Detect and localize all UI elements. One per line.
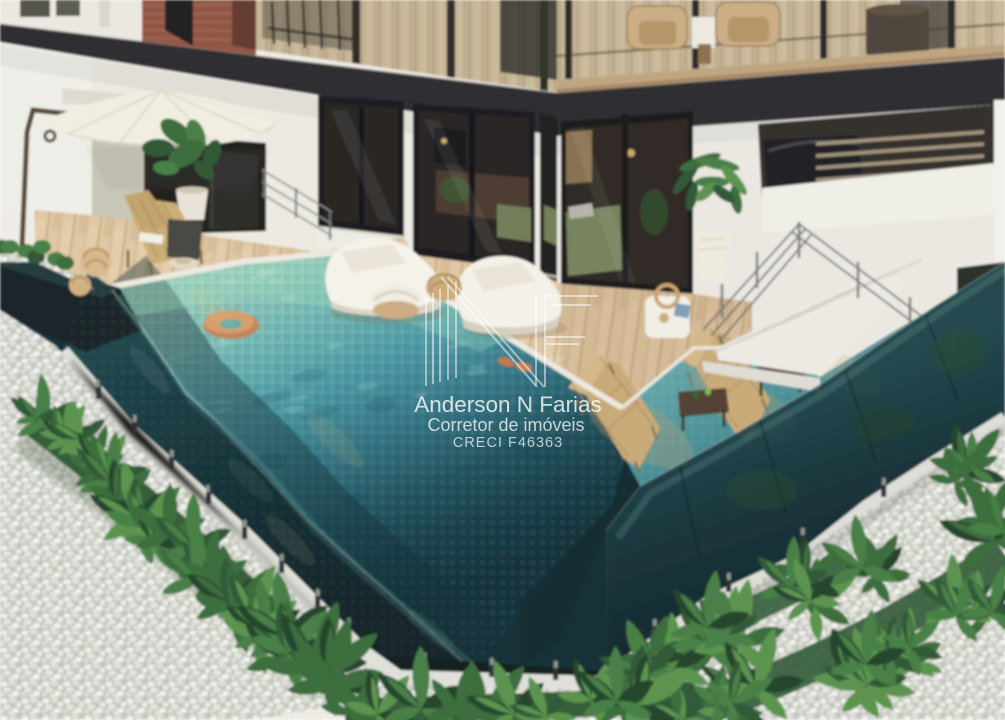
svg-text:Corretor de imóveis: Corretor de imóveis (427, 415, 584, 435)
svg-text:Anderson N Farias: Anderson N Farias (414, 392, 602, 417)
svg-text:CRECI F46363: CRECI F46363 (453, 435, 563, 451)
